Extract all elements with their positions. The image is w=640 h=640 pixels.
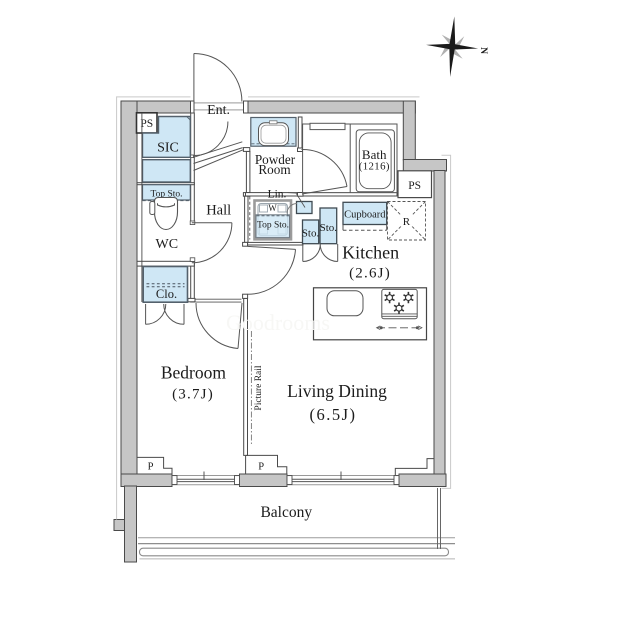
svg-text:Ent.: Ent. <box>207 103 230 118</box>
svg-text:Balcony: Balcony <box>260 504 312 521</box>
svg-text:W: W <box>268 203 277 213</box>
svg-text:PS: PS <box>408 180 421 192</box>
svg-text:Hall: Hall <box>206 203 231 219</box>
svg-text:Kitchen: Kitchen <box>342 243 399 263</box>
svg-text:WC: WC <box>156 237 179 252</box>
svg-text:Bedroom: Bedroom <box>161 363 227 383</box>
svg-text:SIC: SIC <box>157 140 179 155</box>
svg-text:Room: Room <box>258 162 291 177</box>
svg-text:Sto.: Sto. <box>320 222 338 234</box>
svg-text:Lin.: Lin. <box>268 189 287 201</box>
svg-text:Clo.: Clo. <box>156 287 177 301</box>
svg-text:P: P <box>148 461 154 472</box>
svg-text:(2.6J): (2.6J) <box>349 266 391 282</box>
svg-text:Picture Rail: Picture Rail <box>254 365 264 410</box>
svg-text:Top Sto.: Top Sto. <box>257 220 289 230</box>
svg-text:R: R <box>403 216 411 228</box>
svg-text:P: P <box>258 462 264 473</box>
svg-text:Cupboard: Cupboard <box>344 210 386 221</box>
svg-text:Living Dining: Living Dining <box>287 381 387 401</box>
svg-text:N: N <box>478 47 488 54</box>
svg-text:Sto.: Sto. <box>302 227 320 239</box>
svg-text:(6.5J): (6.5J) <box>309 405 356 424</box>
svg-text:Goodrooms: Goodrooms <box>226 310 330 335</box>
svg-text:(3.7J): (3.7J) <box>172 387 214 403</box>
svg-text:(1216): (1216) <box>359 160 390 172</box>
